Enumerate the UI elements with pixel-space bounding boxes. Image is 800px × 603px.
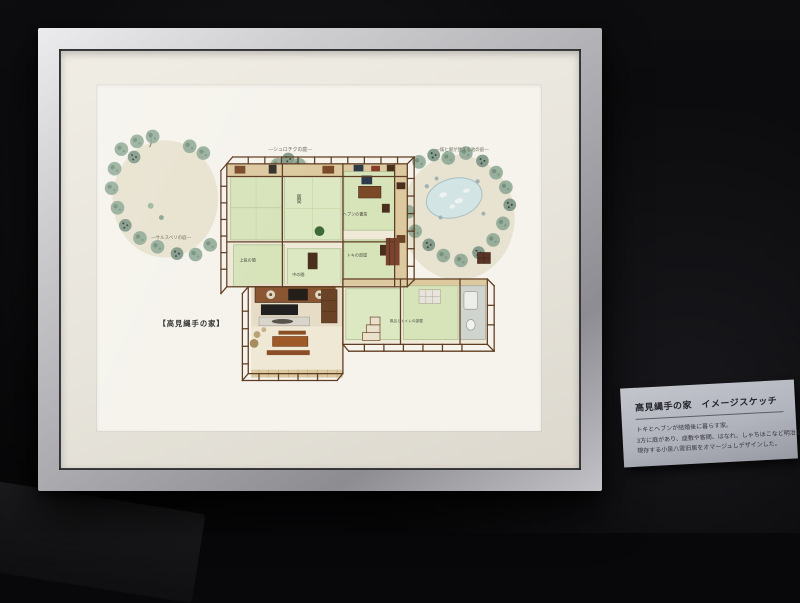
round-cushion [315,226,325,236]
left-garden-label: ―サルスベリの庭― [151,234,191,241]
tall-cabinet [308,253,318,270]
bathtub [464,292,478,310]
room-toki: トキの部屋 [344,238,400,281]
caption-card-title: 高見縄手の家 イメージスケッチ [635,393,784,420]
room-living: 居間 [284,177,341,240]
room-toki-label: トキの部屋 [347,252,367,258]
room-upper-dan: 上段の間 [234,245,285,287]
room-middle-label: 中の間 [292,271,304,277]
artwork-title: 【高見縄手の家】 [158,319,224,328]
picture-frame: ―サルスベリの庭― ―シュロチクの庭― [38,28,602,491]
house-right-annex: 風呂とトイレの部屋 [343,279,487,344]
bathroom [460,286,485,340]
kitchen-shelf [321,290,337,323]
toilet [466,319,475,330]
house-upper-block: 居間 ヘブンの書斎 上段の間 [227,164,408,287]
frame-inner-lip: ―サルスベリの庭― ―シュロチクの庭― [59,49,581,470]
room-study-label: ヘブンの書斎 [343,211,367,217]
left-garden: ―サルスベリの庭― [105,130,218,262]
right-garden: ―城と堀が見える池の庭― [401,146,516,280]
right-garden-label: ―城と堀が見える池の庭― [435,146,489,153]
artwork-paper: ―サルスベリの庭― ―シュロチクの庭― [97,85,541,431]
room-bath-label: 風呂とトイレの部屋 [390,318,423,323]
room-upper-left [231,177,282,240]
mat-board: ―サルスベリの庭― ―シュロチクの庭― [61,51,579,468]
caption-card: 高見縄手の家 イメージスケッチ トキとヘブンが結婚後に暮らす家。 3方に庭があり… [620,380,798,468]
room-study: ヘブンの書斎 [343,172,395,231]
room-middle: 中の間 [287,249,341,287]
house-kitchen-annex [250,284,343,378]
top-garden-label: ―シュロチクの庭― [268,146,312,153]
garden-shrine-box [478,253,491,264]
study-desk [359,186,381,198]
floorplan-sketch: ―サルスベリの庭― ―シュロチクの庭― [97,85,541,431]
shoji-panel [419,290,440,304]
room-living-label: 居間 [296,194,301,205]
room-upper-label: 上段の間 [239,256,255,262]
kitchen-stove [261,304,298,315]
pottery-jar [254,331,261,338]
kitchen-table [273,337,308,347]
